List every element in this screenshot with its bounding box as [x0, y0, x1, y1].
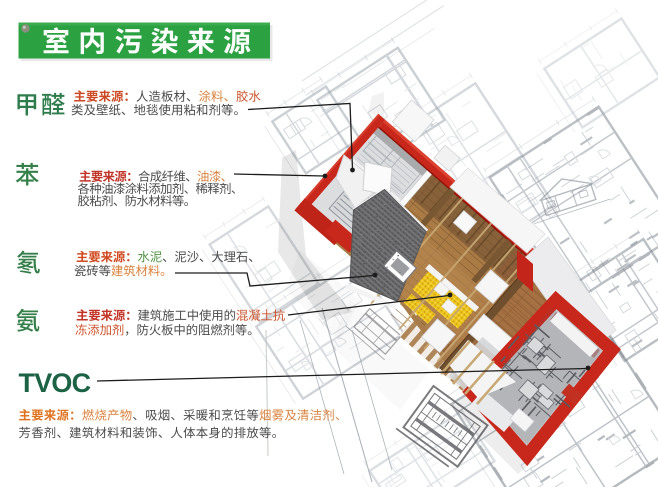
svg-text:TVOC: TVOC	[19, 368, 91, 398]
